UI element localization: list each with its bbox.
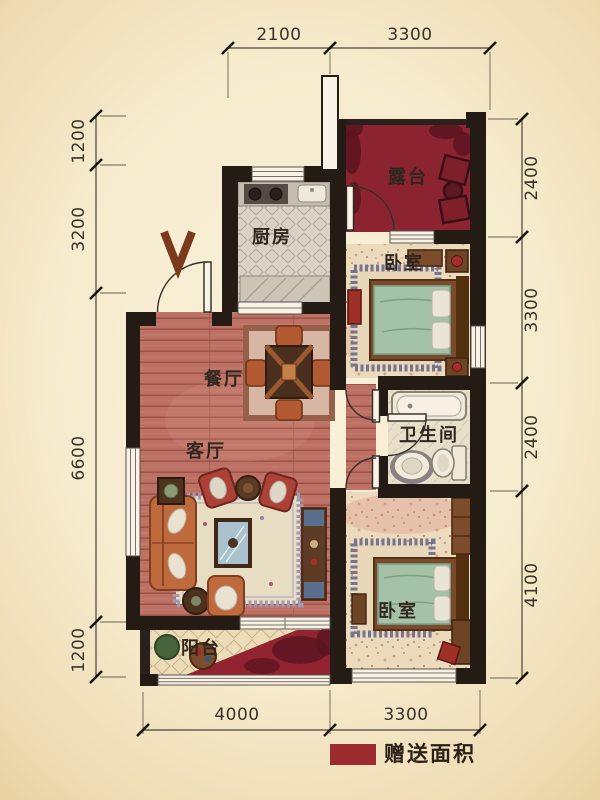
dim-top-left: 2100 bbox=[256, 25, 301, 45]
dimension-right: 2400 3300 2400 4100 bbox=[488, 113, 542, 684]
balcony-left-wall bbox=[140, 630, 150, 676]
bedroom-top-label: 卧室 bbox=[384, 252, 424, 274]
kitchen-threshold bbox=[238, 302, 302, 314]
wardrobe bbox=[452, 498, 472, 554]
dining-label: 餐厅 bbox=[203, 368, 244, 390]
burner bbox=[249, 188, 261, 200]
entry-arrow-icon bbox=[164, 232, 192, 268]
cabinet-decor bbox=[304, 510, 324, 526]
bedroom-top-window bbox=[471, 326, 485, 368]
paint-wash bbox=[340, 494, 464, 534]
dim-left-2: 6600 bbox=[69, 435, 89, 480]
dim-bottom-right: 3300 bbox=[383, 705, 428, 725]
headboard bbox=[456, 276, 469, 364]
sink-bowl bbox=[402, 458, 422, 474]
dimension-top: 2100 3300 bbox=[222, 25, 496, 110]
dining-chair bbox=[276, 400, 302, 420]
terrace-chair bbox=[439, 155, 470, 185]
terrace-top-wall bbox=[346, 119, 470, 125]
kitchen-cabinet bbox=[240, 276, 330, 304]
table-centerpiece bbox=[282, 364, 296, 380]
legend-swatch bbox=[330, 744, 376, 765]
pillow bbox=[432, 322, 450, 349]
floorplan-canvas: 露台 厨房 卧室 餐厅 客厅 卫生间 卧室 阳台 2100 3300 4000 … bbox=[0, 0, 600, 800]
dim-left-0: 1200 bbox=[69, 118, 89, 163]
kitchen-label: 厨房 bbox=[252, 226, 292, 248]
right-outer-wall bbox=[470, 112, 486, 684]
bathroom-label: 卫生间 bbox=[399, 424, 459, 446]
pillow bbox=[432, 290, 450, 317]
dimension-left: 1200 3200 6600 1200 bbox=[69, 110, 126, 683]
balcony-label: 阳台 bbox=[181, 637, 221, 659]
foliage bbox=[244, 658, 280, 674]
hallway-floor bbox=[346, 384, 376, 490]
sofa-pillow bbox=[215, 586, 237, 610]
balcony-plant bbox=[155, 635, 179, 659]
kitchen-window bbox=[252, 167, 304, 181]
dining-chair bbox=[312, 360, 332, 386]
legend: 赠送面积 bbox=[330, 742, 476, 766]
dim-bottom-left: 4000 bbox=[214, 705, 259, 725]
dining-chair bbox=[276, 326, 302, 346]
cabinet-decor bbox=[304, 582, 324, 598]
pillow bbox=[434, 566, 450, 591]
dining-set bbox=[246, 326, 332, 420]
duct-column bbox=[322, 76, 338, 170]
living-window bbox=[126, 448, 140, 556]
pillow bbox=[434, 596, 450, 621]
plant bbox=[191, 596, 201, 606]
dim-left-1: 3200 bbox=[69, 206, 89, 251]
dim-right-3: 4100 bbox=[522, 562, 542, 607]
legend-label: 赠送面积 bbox=[384, 742, 476, 766]
bench bbox=[348, 290, 361, 324]
plant bbox=[164, 484, 178, 498]
kitchen-sink bbox=[298, 185, 326, 202]
burner bbox=[270, 188, 282, 200]
lamp bbox=[453, 363, 462, 372]
mid-wall-lower bbox=[330, 488, 346, 684]
left-outer-wall-upper bbox=[126, 312, 140, 448]
kitchen-left-wall bbox=[222, 166, 238, 312]
bathtub-inner bbox=[397, 396, 461, 416]
dim-right-2: 2400 bbox=[522, 414, 542, 459]
bedroom-top-terrace-window bbox=[390, 231, 434, 243]
faucet bbox=[310, 188, 314, 192]
bedroom-bottom-window bbox=[352, 669, 456, 682]
dresser bbox=[352, 594, 366, 624]
dining-chair bbox=[246, 360, 266, 386]
living-label: 客厅 bbox=[186, 440, 226, 462]
balcony-rail-window bbox=[158, 675, 330, 685]
balcony-sliding-door bbox=[240, 617, 330, 629]
dim-top-right: 3300 bbox=[387, 25, 432, 45]
dim-right-0: 2400 bbox=[522, 155, 542, 200]
floorplan-page: 露台 厨房 卧室 餐厅 客厅 卫生间 卧室 阳台 2100 3300 4000 … bbox=[0, 0, 600, 800]
entry-door bbox=[158, 262, 212, 312]
drain bbox=[408, 404, 413, 409]
terrace-label: 露台 bbox=[388, 166, 428, 188]
coffee-table-item bbox=[228, 538, 238, 548]
terrace-chair bbox=[439, 196, 470, 223]
dim-right-1: 3300 bbox=[522, 287, 542, 332]
dim-left-3: 1200 bbox=[69, 627, 89, 672]
lamp bbox=[452, 256, 463, 267]
bedroom-bottom-label: 卧室 bbox=[378, 600, 418, 622]
dimension-bottom: 4000 3300 bbox=[137, 690, 486, 736]
